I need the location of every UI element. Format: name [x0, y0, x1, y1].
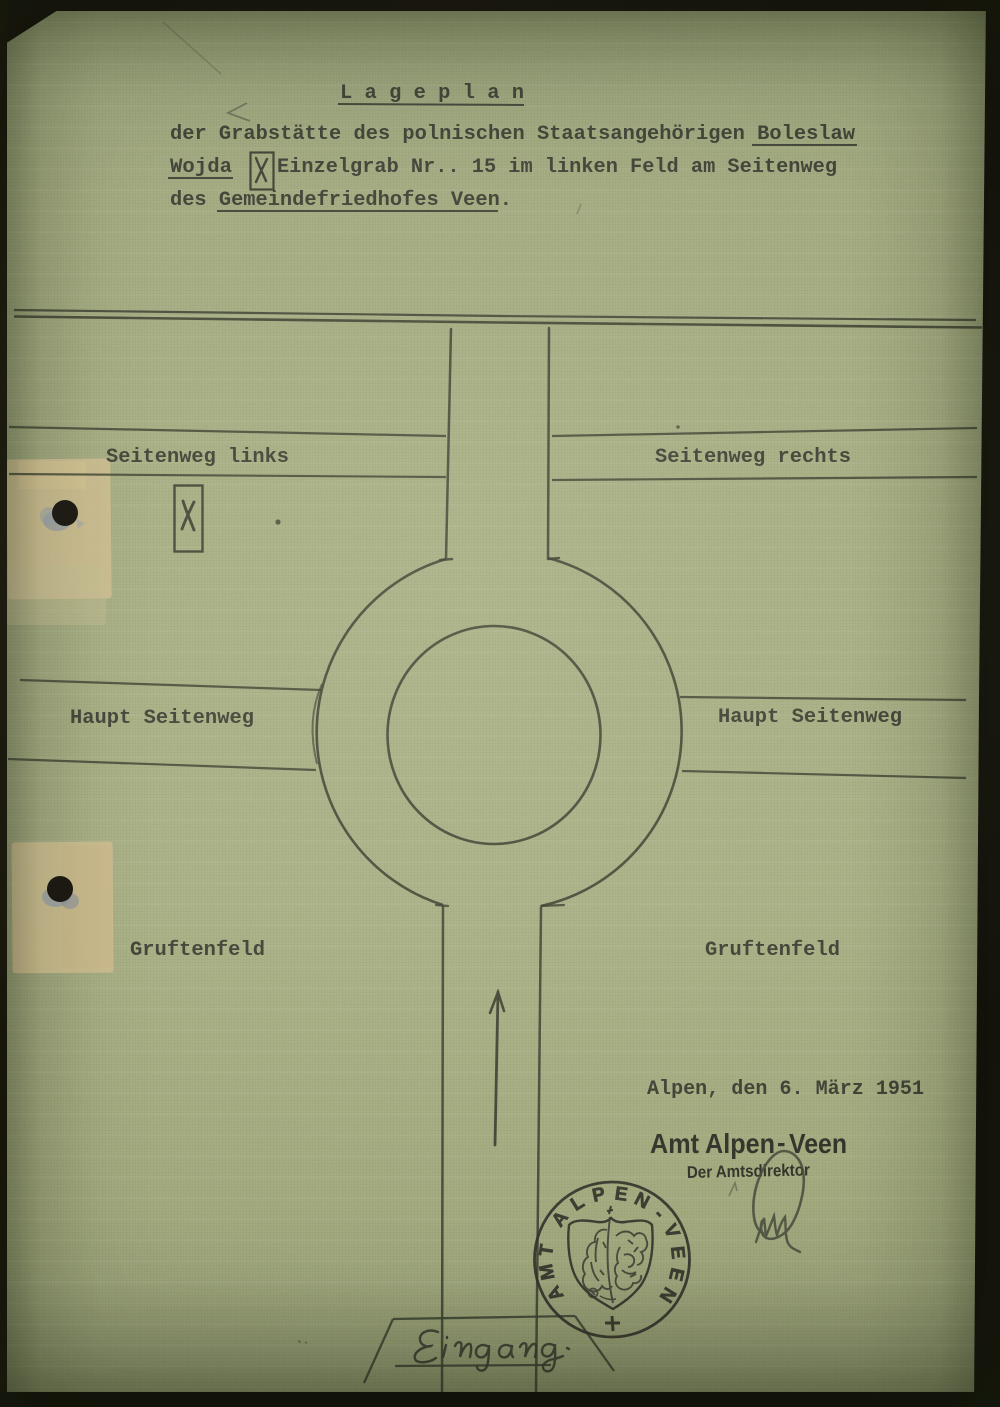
svg-text:Gruftenfeld: Gruftenfeld	[130, 939, 265, 962]
svg-text:Seitenweg rechts: Seitenweg rechts	[655, 446, 851, 469]
svg-text:des Gemeindefriedhofes Veen.: des Gemeindefriedhofes Veen.	[170, 189, 512, 212]
svg-text:Seitenweg links: Seitenweg links	[106, 446, 289, 469]
svg-text:Wojda: Wojda	[170, 156, 232, 179]
svg-text:Haupt Seitenweg: Haupt Seitenweg	[70, 707, 254, 730]
svg-text:Haupt Seitenweg: Haupt Seitenweg	[718, 706, 902, 729]
svg-text:Veen: Veen	[789, 1128, 847, 1159]
svg-text:Amt Alpen: Amt Alpen	[650, 1128, 775, 1159]
svg-text:Der Amtsdirektor: Der Amtsdirektor	[687, 1160, 811, 1182]
svg-text:der Grabstätte des polnischen: der Grabstätte des polnischen Staatsange…	[170, 123, 855, 146]
svg-text:Gruftenfeld: Gruftenfeld	[705, 939, 840, 962]
svg-text:L a g e p l a n: L a g e p l a n	[340, 82, 524, 105]
svg-text:E: E	[666, 1245, 688, 1260]
svg-text:Alpen, den 6. März 1951: Alpen, den 6. März 1951	[647, 1078, 924, 1101]
svg-text:Einzelgrab Nr.. 15 im linken F: Einzelgrab Nr.. 15 im linken Feld am Sei…	[277, 156, 837, 179]
